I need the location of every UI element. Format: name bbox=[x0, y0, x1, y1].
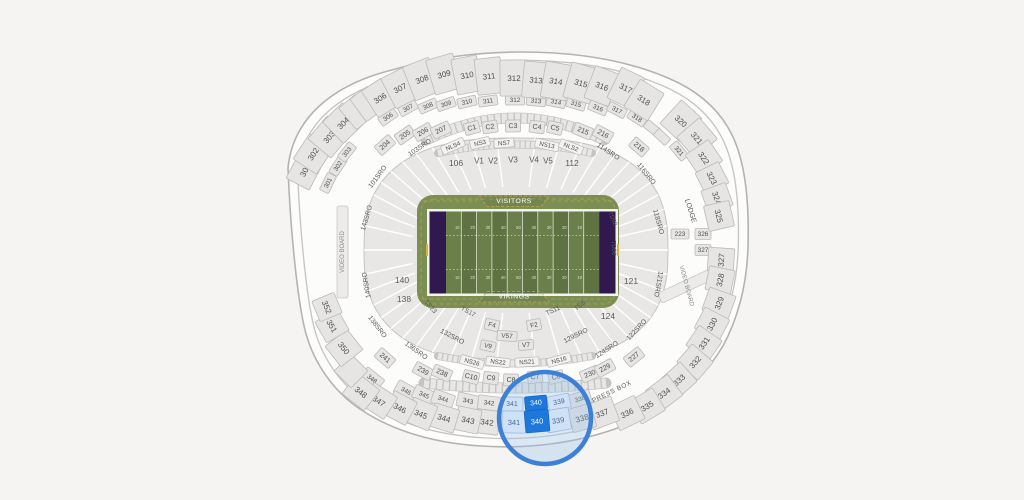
svg-text:20: 20 bbox=[470, 225, 475, 230]
label-v3: V3 bbox=[508, 156, 518, 165]
label-138: 138 bbox=[397, 294, 411, 304]
svg-text:V7: V7 bbox=[522, 342, 531, 350]
svg-text:341: 341 bbox=[506, 401, 518, 408]
stadium-map[interactable]: 101020203030404050504040303020201010VISI… bbox=[0, 0, 1024, 500]
svg-text:20: 20 bbox=[562, 275, 567, 280]
svg-text:342: 342 bbox=[480, 417, 495, 428]
label-v5: V5 bbox=[543, 157, 553, 166]
svg-text:10: 10 bbox=[455, 275, 460, 280]
svg-text:C3: C3 bbox=[508, 123, 517, 130]
section-C2[interactable]: C2 bbox=[482, 120, 499, 134]
label-v1: V1 bbox=[474, 157, 484, 166]
svg-text:40: 40 bbox=[501, 225, 506, 230]
svg-text:C9: C9 bbox=[486, 374, 496, 382]
svg-text:NS7: NS7 bbox=[498, 139, 511, 147]
svg-text:40: 40 bbox=[531, 275, 536, 280]
label-td56: TD56 bbox=[610, 241, 616, 257]
svg-text:30: 30 bbox=[547, 275, 552, 280]
label-106: 106 bbox=[449, 158, 463, 168]
svg-text:10: 10 bbox=[455, 225, 460, 230]
svg-text:342: 342 bbox=[483, 399, 495, 407]
section-V57[interactable]: V57 bbox=[497, 330, 518, 341]
svg-text:327: 327 bbox=[698, 247, 709, 254]
football-field: 101020203030404050504040303020201010VISI… bbox=[417, 195, 619, 308]
away-endzone-label: VISITORS bbox=[496, 198, 532, 205]
label-v2: V2 bbox=[488, 157, 498, 166]
label-124: 124 bbox=[601, 311, 615, 321]
svg-text:V57: V57 bbox=[501, 333, 513, 341]
home-endzone-label: VIKINGS bbox=[498, 294, 529, 301]
section-NS7[interactable]: NS7 bbox=[494, 138, 515, 149]
label-140: 140 bbox=[395, 275, 409, 285]
section-311[interactable]: 311 bbox=[478, 95, 498, 107]
label-v4: V4 bbox=[529, 156, 539, 165]
section-C4[interactable]: C4 bbox=[529, 120, 545, 134]
svg-text:340: 340 bbox=[530, 416, 543, 426]
svg-text:223: 223 bbox=[675, 231, 686, 238]
section-F2[interactable]: F2 bbox=[526, 318, 542, 331]
svg-text:40: 40 bbox=[501, 275, 506, 280]
svg-text:341: 341 bbox=[508, 418, 521, 427]
svg-text:20: 20 bbox=[562, 225, 567, 230]
section-223[interactable]: 223 bbox=[671, 229, 689, 239]
svg-text:NS21: NS21 bbox=[519, 358, 535, 366]
seatmap-stage: 101020203030404050504040303020201010VISI… bbox=[0, 0, 1024, 500]
label-video-board-left: VIDEO BOARD bbox=[340, 231, 346, 273]
svg-text:10: 10 bbox=[577, 225, 582, 230]
svg-text:311: 311 bbox=[483, 97, 494, 105]
svg-text:50: 50 bbox=[516, 275, 521, 280]
section-C3[interactable]: C3 bbox=[505, 120, 520, 132]
svg-text:10: 10 bbox=[577, 275, 582, 280]
section-311[interactable]: 311 bbox=[474, 57, 504, 96]
svg-text:C4: C4 bbox=[532, 123, 542, 131]
section-325[interactable]: 325 bbox=[703, 200, 734, 231]
label-121: 121 bbox=[624, 276, 638, 286]
svg-text:327: 327 bbox=[717, 253, 727, 267]
svg-text:311: 311 bbox=[482, 71, 496, 81]
svg-text:50: 50 bbox=[516, 225, 521, 230]
section-NS21[interactable]: NS21 bbox=[515, 357, 540, 368]
highlighted-sections: 341339340341339340 bbox=[501, 393, 572, 433]
svg-text:C2: C2 bbox=[485, 123, 495, 131]
section-340[interactable]: 340 bbox=[524, 409, 550, 433]
svg-text:312: 312 bbox=[507, 74, 521, 83]
label-112: 112 bbox=[565, 158, 579, 168]
svg-text:312: 312 bbox=[510, 97, 521, 104]
svg-text:30: 30 bbox=[486, 225, 491, 230]
section-V7[interactable]: V7 bbox=[518, 339, 534, 350]
section-340[interactable]: 340 bbox=[524, 395, 547, 411]
section-C9[interactable]: C9 bbox=[483, 371, 500, 385]
svg-text:30: 30 bbox=[547, 225, 552, 230]
svg-text:40: 40 bbox=[531, 225, 536, 230]
section-341[interactable]: 341 bbox=[502, 411, 526, 433]
svg-text:30: 30 bbox=[486, 275, 491, 280]
svg-text:313: 313 bbox=[529, 75, 544, 85]
svg-text:20: 20 bbox=[470, 275, 475, 280]
svg-text:326: 326 bbox=[698, 231, 709, 238]
svg-text:340: 340 bbox=[530, 399, 542, 407]
